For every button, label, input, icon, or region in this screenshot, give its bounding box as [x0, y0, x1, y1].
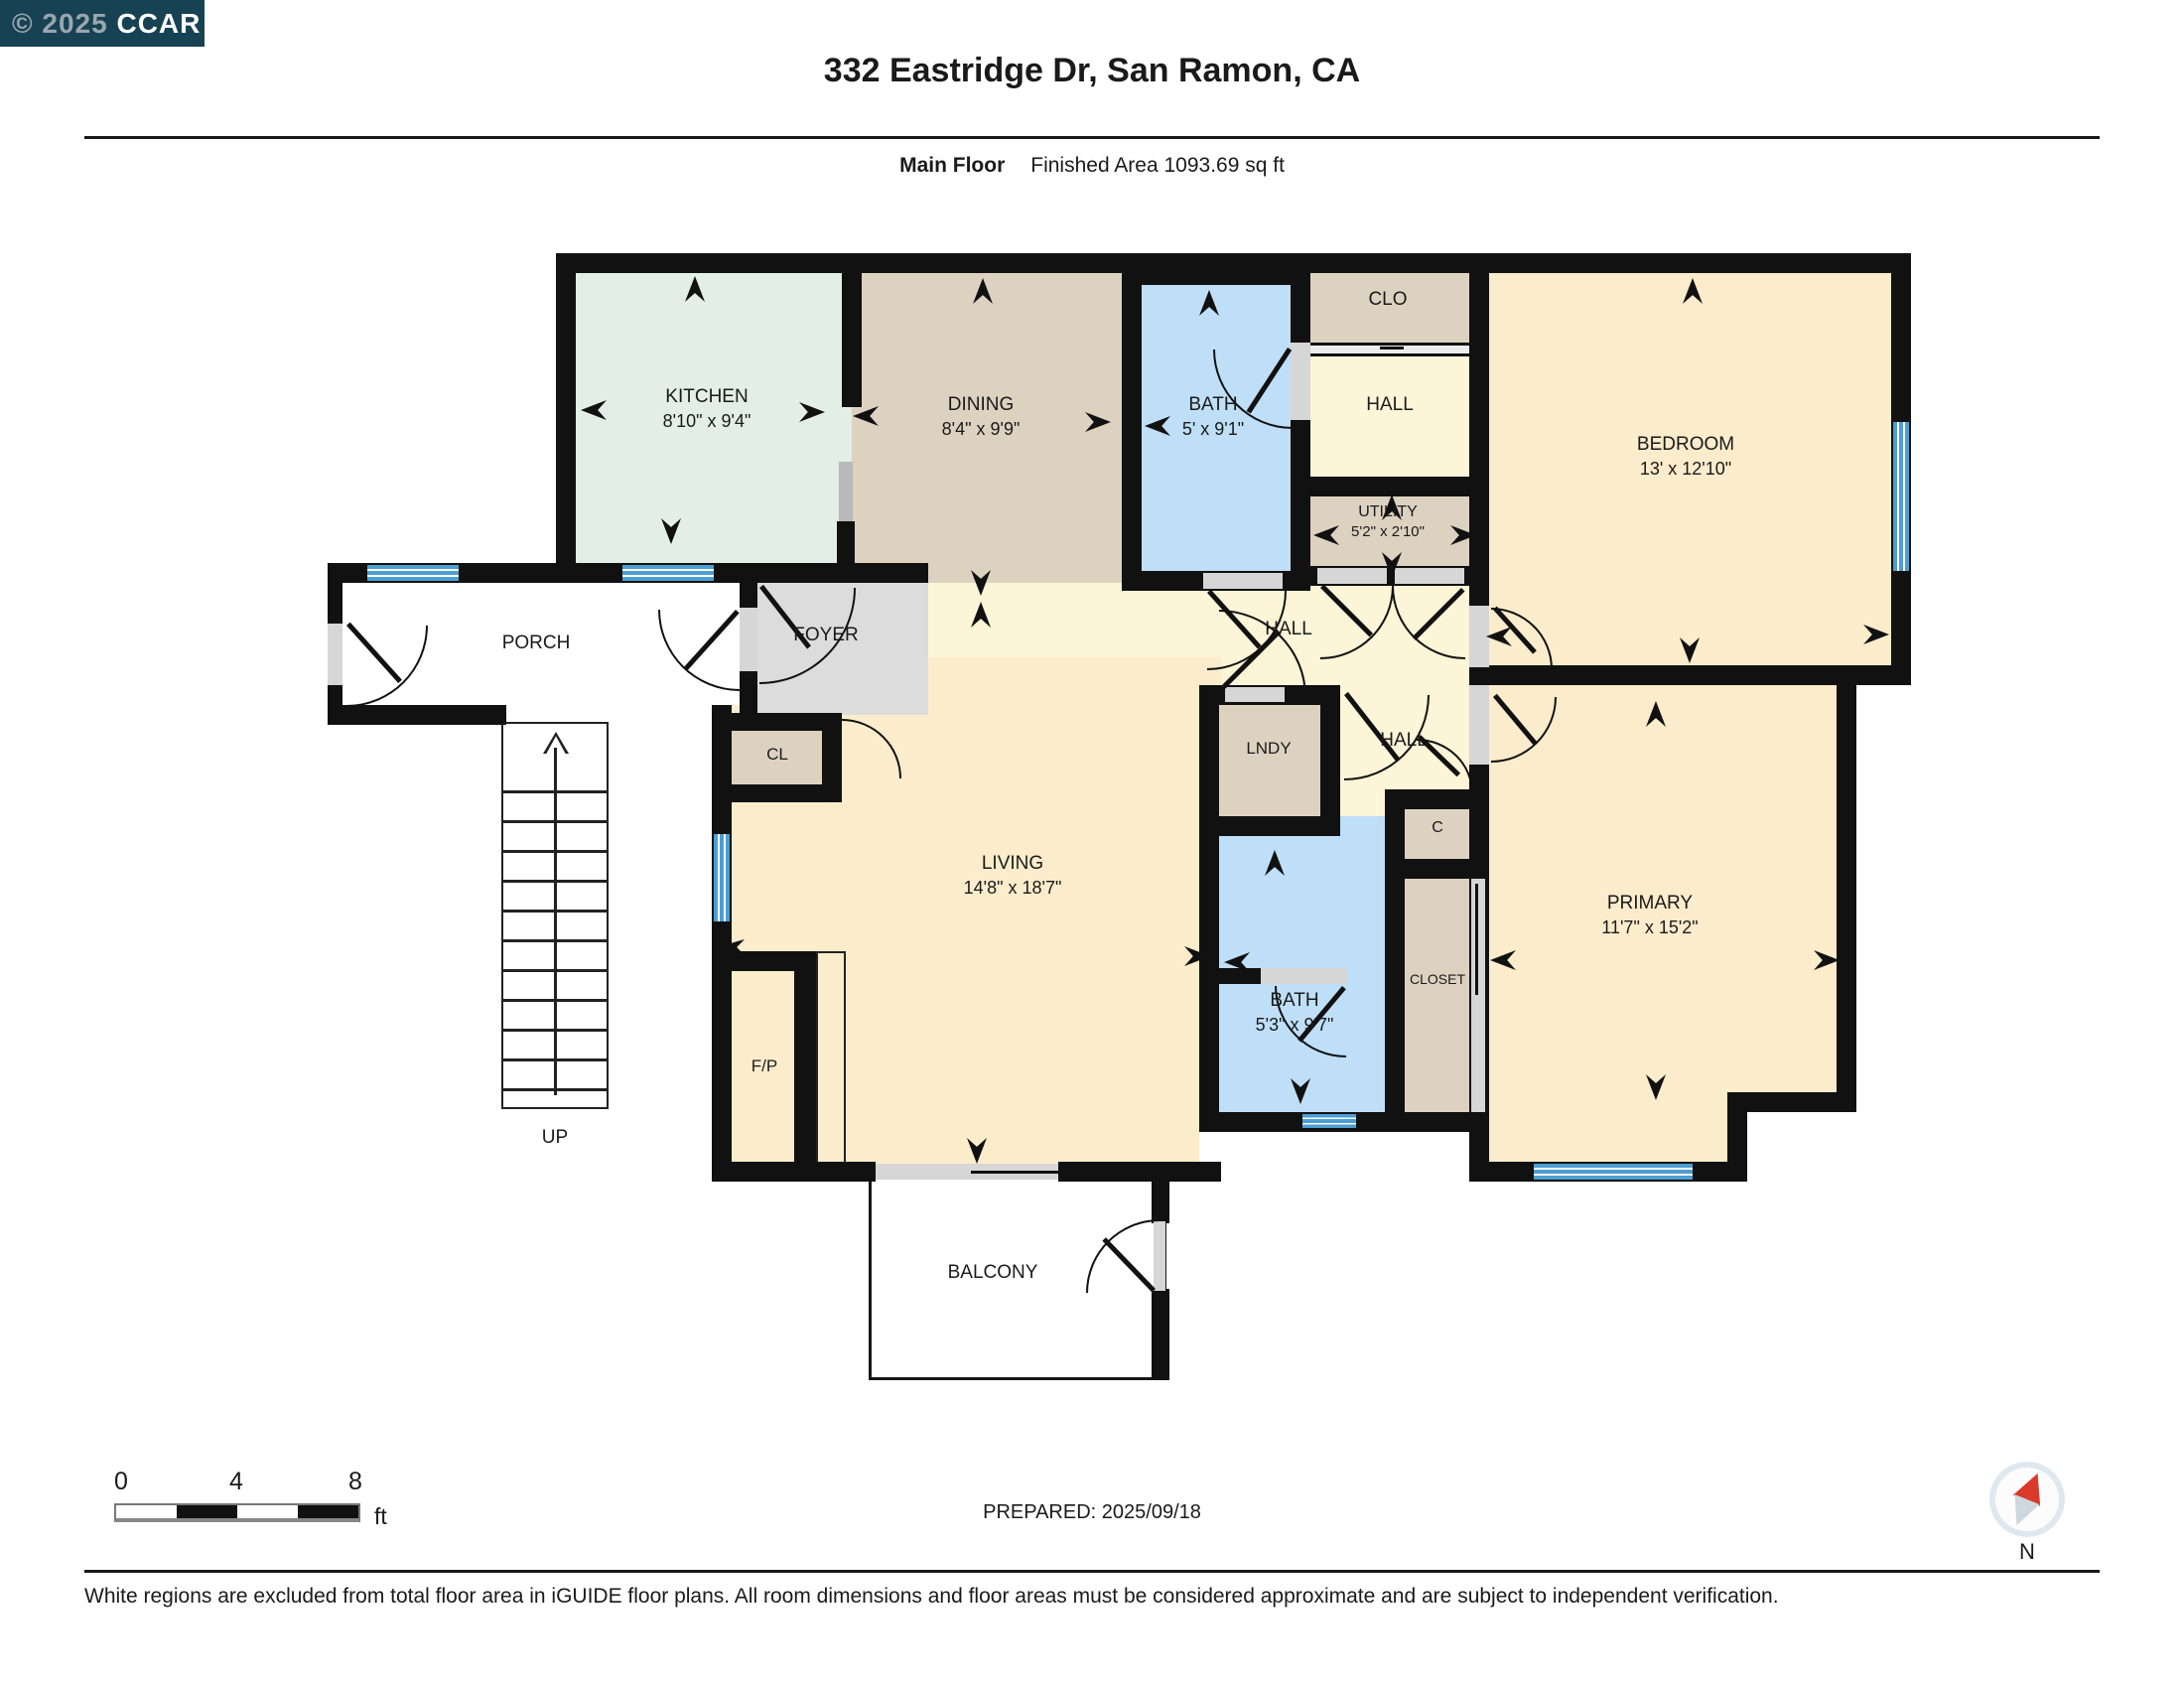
- room-label-fireplace: F/P: [751, 1055, 777, 1078]
- room-name: PORCH: [502, 632, 571, 655]
- room-label-c: C: [1432, 816, 1443, 840]
- window: [1302, 1114, 1356, 1128]
- room-name: CLOSET: [1410, 967, 1465, 991]
- cased-opening: [839, 462, 853, 521]
- sliding-door-track: [971, 1171, 1060, 1174]
- door-opening: [1203, 573, 1283, 589]
- room-name: BATH: [1256, 989, 1334, 1013]
- sliding-door: [1310, 343, 1469, 356]
- scale-ticks: 0 4 8: [114, 1468, 382, 1497]
- wall: [1291, 417, 1310, 591]
- excluded-region: [1199, 1132, 1469, 1182]
- wall: [740, 671, 757, 715]
- stairs: [501, 722, 609, 1109]
- scale-tick: 4: [229, 1468, 243, 1496]
- sliding-door: [1471, 879, 1485, 1112]
- window: [367, 565, 459, 581]
- room-label-hall-lower: HALL: [1380, 729, 1428, 753]
- door-opening: [1317, 568, 1387, 584]
- wall: [1122, 253, 1142, 591]
- floor-plan-page: © 2025 CCAR 332 Eastridge Dr, San Ramon,…: [0, 0, 2184, 1688]
- room-dims: 8'4" x 9'9": [942, 417, 1021, 441]
- floor-label: Main Floor: [899, 154, 1005, 177]
- room-label-living: LIVING14'8" x 18'7": [964, 852, 1062, 900]
- room-name: BALCONY: [948, 1261, 1038, 1285]
- room-label-bath: BATH5' x 9'1": [1182, 393, 1244, 441]
- room-dims: 8'10" x 9'4": [663, 409, 751, 433]
- stairs-up-label: UP: [542, 1126, 568, 1150]
- wall: [328, 705, 506, 725]
- wall: [1152, 1182, 1169, 1223]
- door-opening: [1261, 968, 1348, 984]
- room-dims: 11'7" x 15'2": [1601, 915, 1698, 939]
- room-name: LIVING: [964, 852, 1062, 876]
- wall: [1199, 685, 1219, 1132]
- wall: [1291, 253, 1310, 343]
- room-dims: 5'2" x 2'10": [1351, 522, 1425, 542]
- room-name: HALL: [1380, 729, 1428, 753]
- room-name: CL: [766, 743, 788, 767]
- compass-north-label: N: [2015, 1539, 2039, 1565]
- room-dims: 5'3" x 9'7": [1256, 1013, 1334, 1037]
- wall: [842, 253, 862, 407]
- room-name: KITCHEN: [663, 385, 751, 409]
- room-label-dining: DINING8'4" x 9'9": [942, 393, 1021, 441]
- fireplace-hearth: [816, 951, 846, 1174]
- door-opening: [1469, 685, 1489, 765]
- wall: [1727, 1092, 1747, 1182]
- room-name: DINING: [942, 393, 1021, 417]
- room-label-cl: CL: [766, 743, 788, 767]
- wall: [1291, 477, 1489, 496]
- compass-icon: [1995, 1468, 2059, 1531]
- floor-subtitle: Main FloorFinished Area 1093.69 sq ft: [0, 154, 2184, 178]
- room-dims: 13' x 12'10": [1637, 457, 1734, 481]
- compass-needle: [1985, 1458, 2068, 1540]
- room-label-utility: UTILITY5'2" x 2'10": [1351, 502, 1425, 542]
- excluded-region: [1747, 1112, 1856, 1182]
- divider: [84, 136, 2100, 139]
- page-title: 332 Eastridge Dr, San Ramon, CA: [0, 52, 2184, 90]
- scale-tick: 0: [114, 1468, 128, 1496]
- room-label-kitchen: KITCHEN8'10" x 9'4": [663, 385, 751, 433]
- window: [1534, 1164, 1693, 1180]
- room-label-bedroom: BEDROOM13' x 12'10": [1637, 433, 1734, 481]
- room-name: C: [1432, 816, 1443, 840]
- wall: [1469, 253, 1489, 606]
- window: [622, 565, 714, 581]
- room-name: BEDROOM: [1637, 433, 1734, 457]
- room-name: F/P: [751, 1055, 777, 1078]
- room-name: CLO: [1368, 288, 1407, 312]
- wall: [1320, 685, 1340, 836]
- room-label-closet: CLOSET: [1410, 967, 1465, 991]
- wall: [794, 951, 816, 1174]
- badge-copyright: © 2025: [12, 8, 108, 39]
- room-name: UTILITY: [1351, 502, 1425, 522]
- room-name: HALL: [1366, 393, 1414, 417]
- room-name: HALL: [1265, 618, 1312, 641]
- wall: [732, 784, 842, 802]
- wall: [1152, 1289, 1169, 1380]
- badge-org: CCAR: [116, 8, 201, 39]
- wall: [1385, 809, 1405, 1132]
- wall: [1837, 685, 1856, 1112]
- room-label-porch: PORCH: [502, 632, 571, 655]
- room-dims: 5' x 9'1": [1182, 417, 1244, 441]
- door-opening: [1395, 568, 1464, 584]
- room-label-clo: CLO: [1368, 288, 1407, 312]
- disclaimer-text: White regions are excluded from total fl…: [84, 1585, 2100, 1609]
- room-name: UP: [542, 1126, 568, 1150]
- area-label: Finished Area 1093.69 sq ft: [1030, 154, 1285, 177]
- wall: [556, 253, 576, 583]
- room-name: FOYER: [793, 624, 858, 647]
- room-label-balcony: BALCONY: [948, 1261, 1038, 1285]
- stair-divider: [554, 748, 557, 1095]
- door-opening: [1291, 343, 1310, 420]
- wall: [1199, 816, 1340, 836]
- room-label-bath2: BATH5'3" x 9'7": [1256, 989, 1334, 1037]
- room-dims: 14'8" x 18'7": [964, 876, 1062, 900]
- window: [714, 834, 730, 921]
- wall: [328, 576, 342, 624]
- wall: [1122, 253, 1310, 285]
- room-name: BATH: [1182, 393, 1244, 417]
- window: [1893, 422, 1909, 571]
- compass-south-needle: [1985, 1458, 2068, 1540]
- room-label-hall-upper: HALL: [1366, 393, 1414, 417]
- divider: [84, 1570, 2100, 1573]
- wall: [732, 713, 842, 731]
- wall: [740, 576, 757, 608]
- sliding-door-track: [1380, 347, 1404, 350]
- door-opening: [328, 624, 342, 685]
- scale-tick: 8: [348, 1468, 362, 1496]
- room-label-hall-mid: HALL: [1265, 618, 1312, 641]
- room-name: PRIMARY: [1601, 892, 1698, 915]
- wall: [837, 521, 855, 583]
- wall: [1058, 1162, 1221, 1182]
- prepared-date: PREPARED: 2025/09/18: [0, 1501, 2184, 1524]
- room-label-primary: PRIMARY11'7" x 15'2": [1601, 892, 1698, 939]
- room-label-foyer: FOYER: [793, 624, 858, 647]
- sliding-door-track: [1475, 884, 1478, 995]
- room-name: LNDY: [1246, 737, 1291, 761]
- wall: [1219, 968, 1261, 984]
- room-label-lndy: LNDY: [1246, 737, 1291, 761]
- wall: [712, 705, 732, 1182]
- wall: [712, 1162, 876, 1182]
- door-opening: [740, 608, 757, 671]
- brand-badge: © 2025 CCAR: [0, 0, 205, 47]
